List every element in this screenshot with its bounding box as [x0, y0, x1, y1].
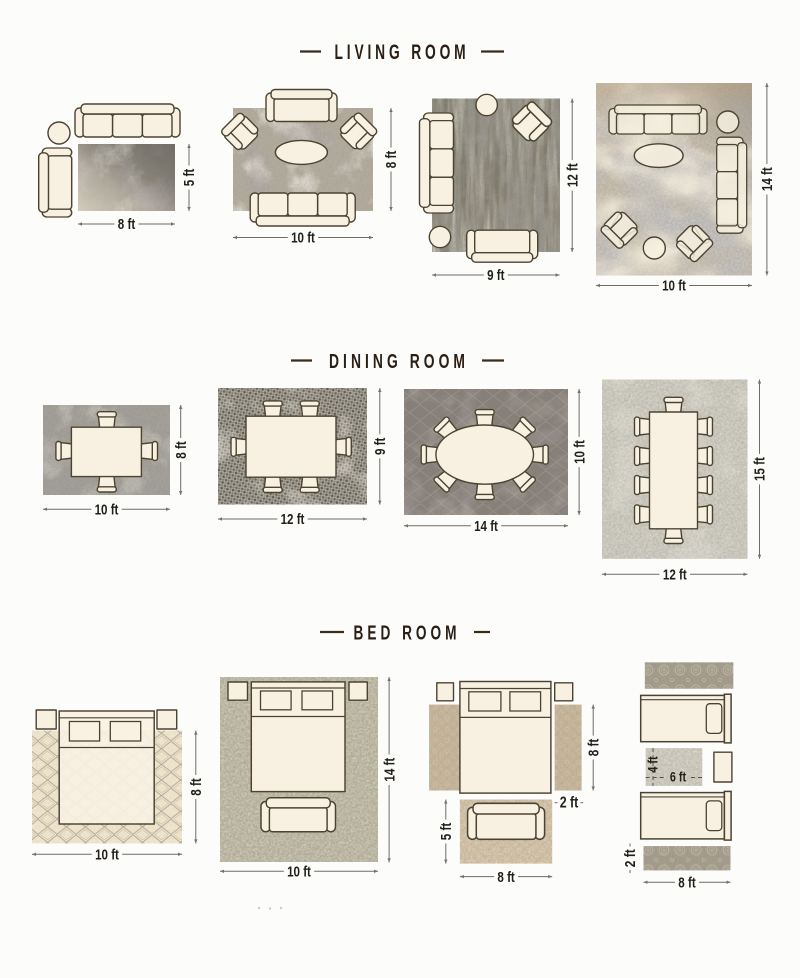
svg-text:10 ft: 10 ft: [662, 277, 686, 294]
svg-text:DINING ROOM: DINING ROOM: [329, 350, 469, 373]
svg-text:14 ft: 14 ft: [381, 757, 398, 781]
svg-text:10 ft: 10 ft: [95, 501, 119, 518]
svg-text:8 ft: 8 ft: [173, 441, 190, 459]
svg-text:5 ft: 5 ft: [181, 168, 198, 186]
svg-text:LIVING ROOM: LIVING ROOM: [335, 40, 470, 64]
svg-text:9 ft: 9 ft: [487, 267, 505, 284]
svg-text:12 ft: 12 ft: [281, 511, 305, 528]
svg-text:8 ft: 8 ft: [383, 150, 400, 168]
svg-text:2 ft: 2 ft: [560, 793, 579, 811]
svg-text:12 ft: 12 ft: [663, 566, 687, 583]
svg-text:8 ft: 8 ft: [118, 216, 136, 233]
svg-text:6 ft: 6 ft: [670, 769, 686, 784]
svg-text:14 ft: 14 ft: [759, 167, 776, 191]
svg-text:9 ft: 9 ft: [372, 437, 389, 455]
svg-text:10 ft: 10 ft: [287, 863, 311, 880]
svg-text:2 ft: 2 ft: [622, 849, 639, 867]
svg-text:12 ft: 12 ft: [564, 163, 581, 187]
svg-text:10 ft: 10 ft: [291, 229, 315, 246]
svg-text:10 ft: 10 ft: [571, 440, 588, 464]
svg-text:4 ft: 4 ft: [645, 756, 660, 772]
svg-text:8 ft: 8 ft: [188, 778, 205, 796]
svg-text:14 ft: 14 ft: [474, 518, 498, 535]
svg-text:5 ft: 5 ft: [438, 822, 455, 840]
svg-text:8 ft: 8 ft: [585, 738, 602, 756]
svg-text:8 ft: 8 ft: [497, 869, 515, 886]
svg-text:10 ft: 10 ft: [95, 846, 119, 863]
svg-text:15 ft: 15 ft: [751, 457, 768, 481]
svg-text:8 ft: 8 ft: [678, 874, 696, 891]
svg-text:BED ROOM: BED ROOM: [354, 621, 461, 644]
